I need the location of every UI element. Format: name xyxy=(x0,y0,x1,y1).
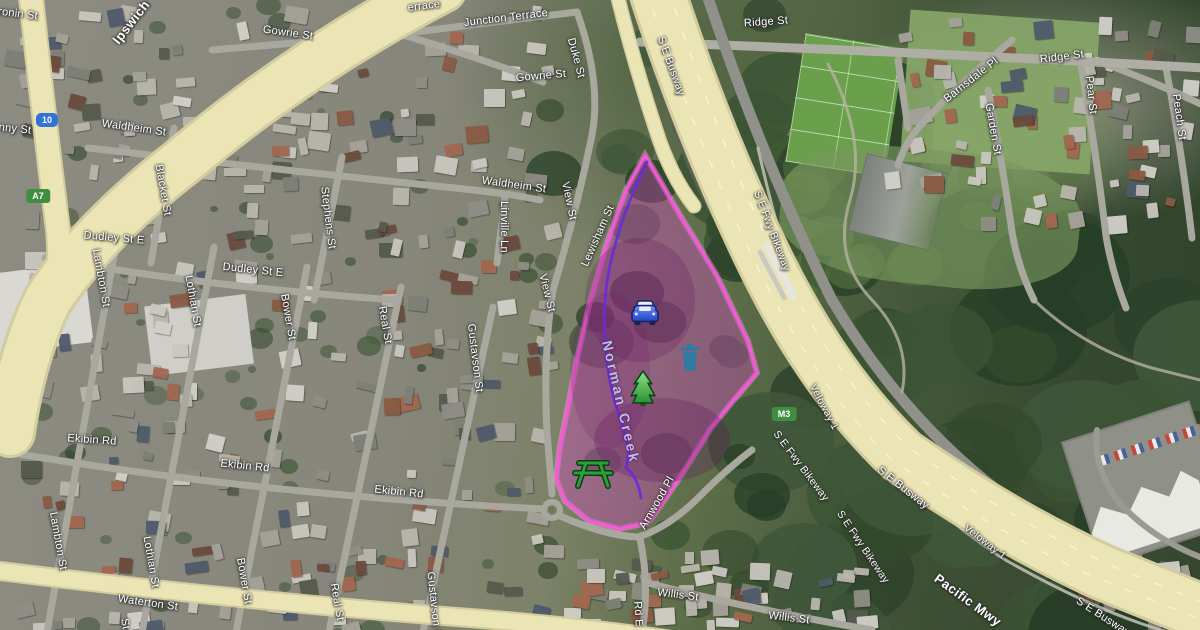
route-badge-m3: M3 xyxy=(772,407,797,421)
satellite-map-viewport[interactable]: ronin SterraceJunction TerraceGowrie StG… xyxy=(0,0,1200,630)
route-badge-10: 10 xyxy=(36,113,58,127)
route-badge-a7: A7 xyxy=(26,189,50,203)
route-badges-layer: 10A7M3 xyxy=(0,0,1200,630)
